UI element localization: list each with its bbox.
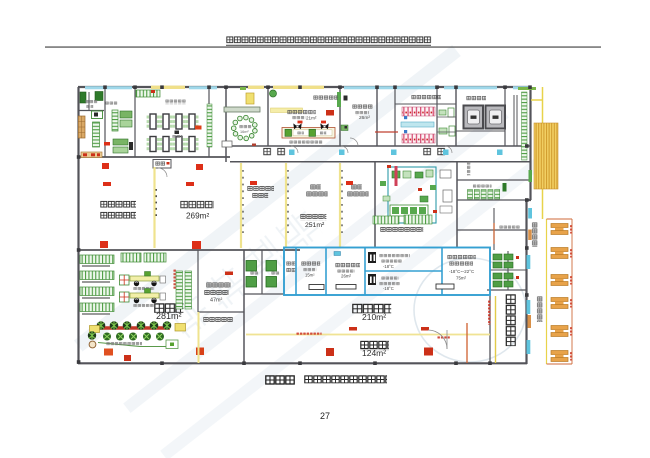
svg-text:47m²: 47m² [210,298,222,304]
svg-text:16m²: 16m² [240,130,249,134]
svg-text:15m²: 15m² [305,273,315,278]
svg-text:26m²: 26m² [341,274,352,279]
svg-text:27: 27 [320,411,330,421]
svg-text:26m²: 26m² [359,115,370,121]
svg-text:-18°C: -18°C [383,264,394,269]
svg-text:269m²: 269m² [186,212,209,221]
svg-text:210m²: 210m² [362,312,386,322]
svg-text:-18°C~-22°C: -18°C~-22°C [449,269,474,274]
svg-text:75m²: 75m² [456,276,467,281]
svg-text:251m²: 251m² [305,222,325,229]
svg-text:281m²: 281m² [156,311,182,321]
svg-text:124m²: 124m² [362,348,386,358]
svg-text:21m²: 21m² [306,116,317,121]
svg-text:-18°C: -18°C [383,286,394,291]
